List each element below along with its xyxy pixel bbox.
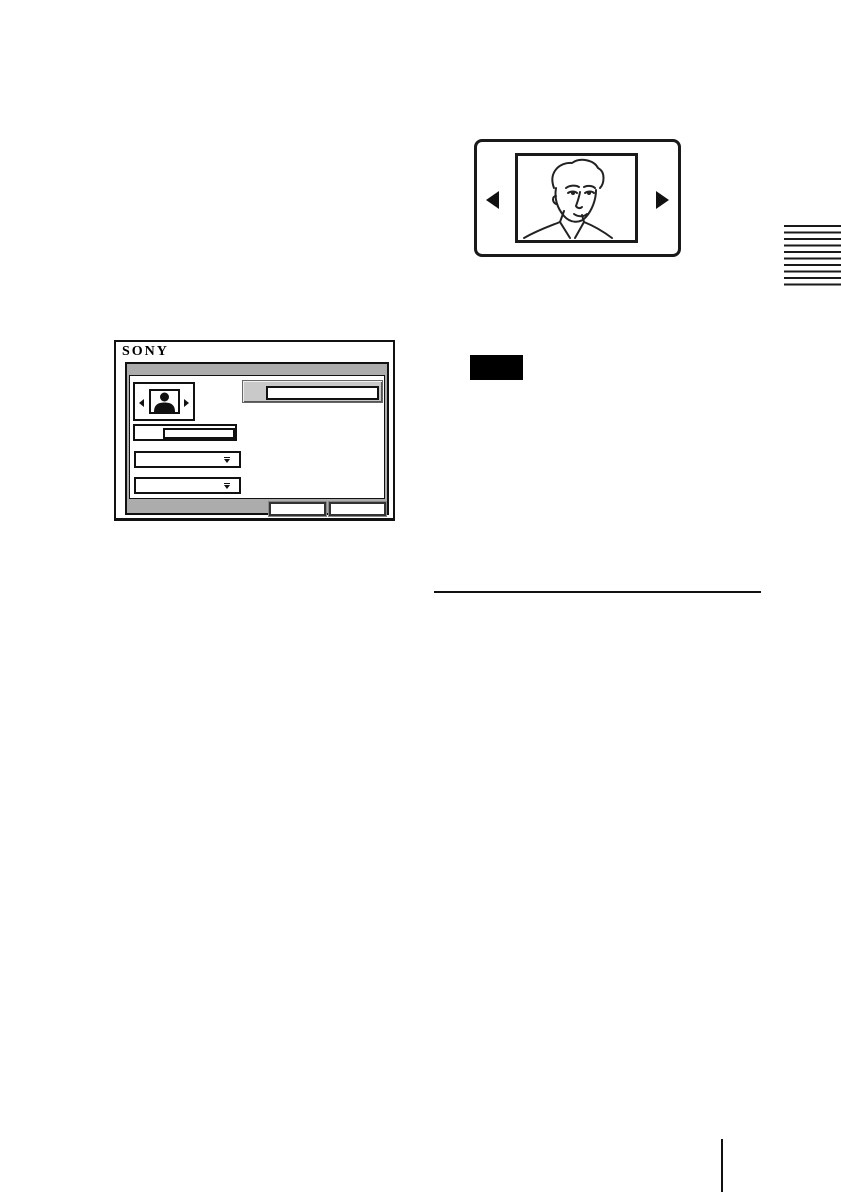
dropdown-1	[134, 451, 241, 468]
photo-selector	[133, 382, 195, 421]
photo-prev-arrow-icon	[139, 399, 144, 407]
photo-thumbnail	[149, 389, 180, 414]
photo-next-arrow-icon	[184, 399, 189, 407]
dialog-panel	[125, 362, 389, 515]
dialog-button-1	[269, 502, 326, 516]
text-entry-field	[133, 424, 237, 441]
carousel-left-arrow-icon	[486, 191, 499, 209]
section-divider-line	[434, 591, 761, 593]
text-entry-input	[163, 428, 235, 439]
dropdown-arrow-icon	[223, 456, 231, 464]
carousel-right-arrow-icon	[656, 191, 669, 209]
sony-logo: SONY	[122, 344, 169, 360]
dialog-content-area	[129, 375, 385, 499]
section-tab-stripes	[784, 225, 841, 287]
portrait-frame	[515, 153, 638, 243]
person-icon	[151, 391, 178, 412]
highlighted-entry-input	[266, 386, 379, 400]
footer-divider-line	[721, 1139, 723, 1192]
dialog-button-2	[329, 502, 386, 516]
man-portrait-drawing	[518, 156, 635, 240]
note-badge	[470, 355, 523, 380]
sony-dialog-illustration: SONY	[114, 340, 395, 521]
dropdown-arrow-icon	[223, 482, 231, 490]
highlighted-entry-field	[242, 380, 383, 403]
dropdown-2	[134, 477, 241, 494]
portrait-carousel-illustration	[474, 139, 681, 257]
